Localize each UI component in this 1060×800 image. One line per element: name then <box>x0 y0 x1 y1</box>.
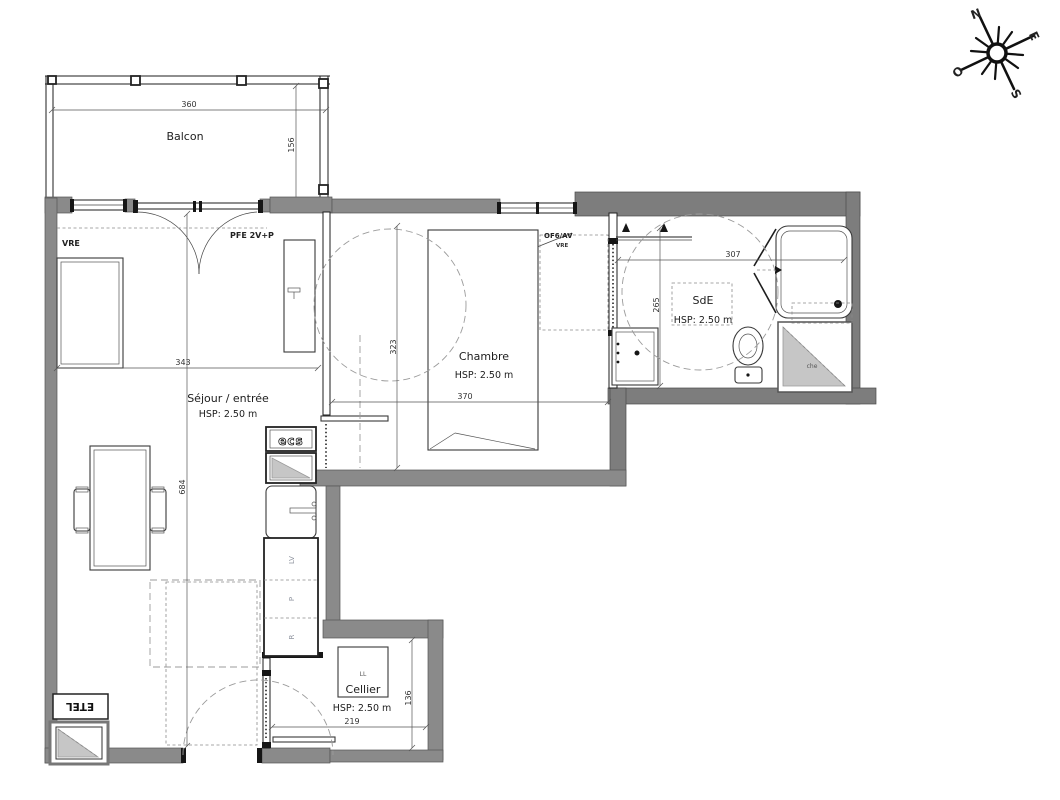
balcony: 360 156 Balcon <box>45 76 330 207</box>
railing-post <box>319 79 328 88</box>
wall-cellar-right <box>428 620 443 760</box>
balcony-width-dimension: 360 <box>49 100 329 113</box>
bathroom-ceiling-height: HSP: 2.50 m <box>674 315 733 326</box>
partition-living-bedroom <box>321 212 388 468</box>
svg-text:343: 343 <box>175 358 190 367</box>
compass-west-label: O <box>949 63 966 80</box>
entry-door-swing <box>183 680 333 755</box>
bedroom-window-label: OF6/AV <box>544 232 573 240</box>
cellar-sliding-door-panel <box>273 737 335 742</box>
compass-hub <box>988 44 1006 62</box>
floor-plan-page: N E S O 360 156 Balc <box>0 0 1060 800</box>
bedroom-ceiling-height: HSP: 2.50 m <box>455 370 514 381</box>
toilet <box>733 327 763 383</box>
svg-text:307: 307 <box>725 250 740 259</box>
water-heater-label: ecs <box>278 434 303 448</box>
svg-text:323: 323 <box>389 339 398 354</box>
dining-table <box>74 446 166 570</box>
shower-drain <box>834 300 842 308</box>
wall-cellar-bottom <box>330 750 443 762</box>
water-heater-box: ecs <box>266 427 316 451</box>
washer-label: LL <box>360 671 367 678</box>
cellar-label: Cellier <box>346 683 381 696</box>
railing-post <box>319 185 328 194</box>
chair <box>150 489 166 531</box>
living-window-label: VRE <box>62 239 80 248</box>
railing-post <box>237 76 246 85</box>
clearance-zone-dashed <box>540 235 608 330</box>
bed <box>428 230 538 450</box>
kitchen-column: ecs LV P R <box>264 427 318 656</box>
bedroom-depth-dimension: 323 <box>389 223 400 471</box>
compass-south-label: S <box>1008 87 1024 101</box>
svg-text:370: 370 <box>457 392 472 401</box>
wall-cellar-top <box>323 620 443 638</box>
living-window <box>70 199 127 212</box>
wall-left <box>45 198 57 763</box>
vanity-sink <box>612 328 658 385</box>
cellar-width-dimension: 219 <box>269 717 429 730</box>
cellar-depth-dimension: 136 <box>404 637 415 751</box>
duct-box-bathroom: che <box>778 322 852 392</box>
duct-box-kitchen <box>266 453 316 483</box>
bedroom-label: Chambre <box>459 350 509 363</box>
compass-rose: N E S O <box>949 6 1042 102</box>
bathroom-fixtures: che <box>612 214 852 392</box>
svg-text:684: 684 <box>178 479 187 494</box>
duct-box-entry <box>50 722 108 764</box>
living-ceiling-height: HSP: 2.50 m <box>199 409 258 420</box>
balcony-depth-dimension: 156 <box>287 83 299 207</box>
svg-text:219: 219 <box>344 717 359 726</box>
dishwasher-label: LV <box>288 556 296 564</box>
shower <box>776 226 852 318</box>
fridge-label: R <box>288 634 296 639</box>
svg-text:156: 156 <box>287 137 296 152</box>
bathroom-label: SdE <box>693 294 714 307</box>
cellar-ceiling-height: HSP: 2.50 m <box>333 703 392 714</box>
kitchen-appliances: LV P R <box>264 538 318 656</box>
sofa <box>57 258 123 368</box>
wall-bedroom-bottom <box>300 470 626 486</box>
svg-text:136: 136 <box>404 690 413 705</box>
floor-plan: N E S O 360 156 Balc <box>0 0 1060 800</box>
compass-east-label: E <box>1026 29 1042 42</box>
etel-label: ETEL <box>66 700 95 712</box>
duct-label: che <box>807 363 818 370</box>
tall-cabinet <box>284 240 315 352</box>
bedroom-furniture <box>314 229 608 468</box>
svg-text:265: 265 <box>652 297 661 312</box>
chair <box>74 489 90 531</box>
future-furniture-dashed <box>150 580 260 745</box>
wall-bottom <box>262 748 330 763</box>
balcony-door-label: PFE 2V+P <box>230 231 274 240</box>
hob-label: P <box>288 597 296 601</box>
living-label: Séjour / entrée <box>187 392 269 405</box>
bedroom-window-shutter-label: VRE <box>556 243 568 249</box>
bedroom-sliding-door-panel <box>321 416 388 421</box>
living-depth-dimension: 684 <box>178 211 190 749</box>
wall-pillar <box>270 197 332 213</box>
railing-post <box>131 76 140 85</box>
etel-box: ETEL <box>53 694 108 719</box>
partition-living-cellar <box>262 652 335 748</box>
door-leaf-swing <box>137 212 199 274</box>
wall-shelf <box>616 223 692 240</box>
svg-text:360: 360 <box>181 100 196 109</box>
railing-post <box>48 76 56 84</box>
door-leaf-swing <box>199 212 257 274</box>
balcony-label: Balcon <box>166 130 203 143</box>
technical-units: ETEL <box>50 694 108 764</box>
kitchen-sink <box>266 486 316 538</box>
